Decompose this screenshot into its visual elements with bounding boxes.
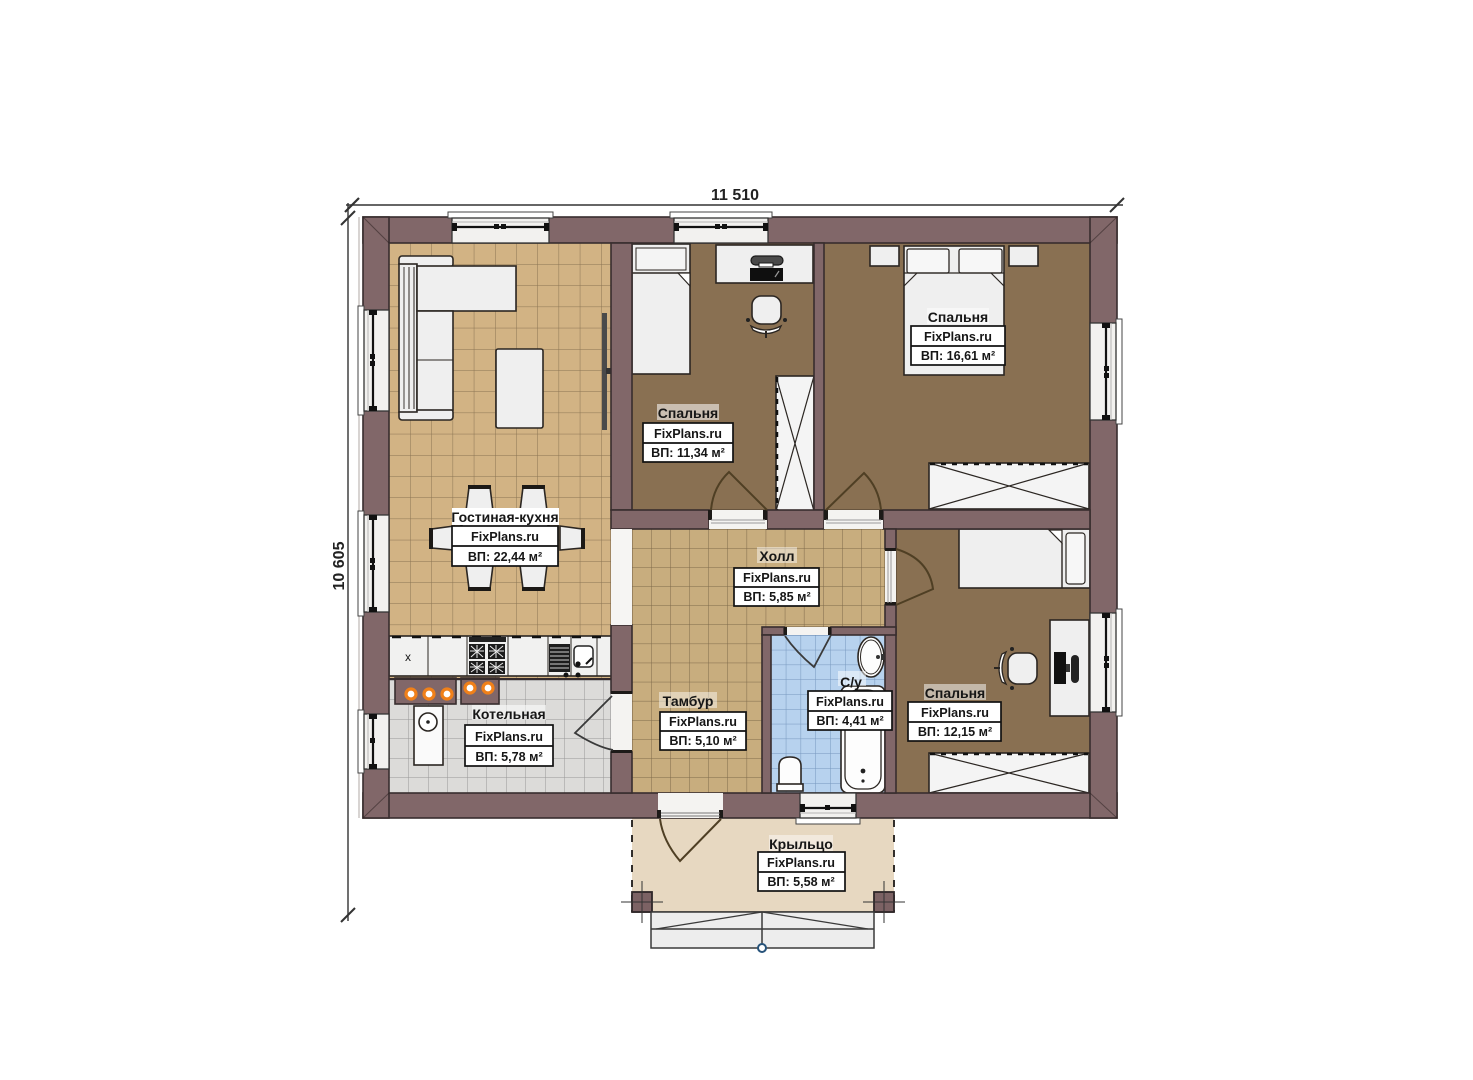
- svg-text:FixPlans.ru: FixPlans.ru: [471, 530, 539, 544]
- svg-text:Крыльцо: Крыльцо: [769, 836, 833, 852]
- svg-text:x: x: [405, 650, 411, 664]
- svg-text:Спальня: Спальня: [658, 405, 718, 421]
- svg-text:Гостиная-кухня: Гостиная-кухня: [451, 509, 558, 525]
- svg-text:ВП: 12,15 м²: ВП: 12,15 м²: [918, 725, 992, 739]
- svg-text:FixPlans.ru: FixPlans.ru: [924, 330, 992, 344]
- svg-text:FixPlans.ru: FixPlans.ru: [743, 571, 811, 585]
- svg-text:ВП: 5,85 м²: ВП: 5,85 м²: [743, 590, 810, 604]
- svg-text:ВП: 5,58 м²: ВП: 5,58 м²: [767, 875, 834, 889]
- svg-text:FixPlans.ru: FixPlans.ru: [816, 695, 884, 709]
- svg-text:FixPlans.ru: FixPlans.ru: [475, 730, 543, 744]
- svg-text:ВП: 5,10 м²: ВП: 5,10 м²: [669, 734, 736, 748]
- svg-text:Тамбур: Тамбур: [663, 693, 714, 709]
- svg-text:ВП: 4,41 м²: ВП: 4,41 м²: [816, 714, 883, 728]
- svg-text:ВП: 11,34 м²: ВП: 11,34 м²: [651, 446, 725, 460]
- svg-text:FixPlans.ru: FixPlans.ru: [654, 427, 722, 441]
- svg-text:Холл: Холл: [759, 548, 794, 564]
- svg-text:Котельная: Котельная: [472, 706, 545, 722]
- svg-text:ВП: 16,61 м²: ВП: 16,61 м²: [921, 349, 995, 363]
- svg-text:Спальня: Спальня: [928, 309, 988, 325]
- svg-text:С/у: С/у: [840, 674, 862, 690]
- svg-text:11 510: 11 510: [711, 187, 759, 204]
- svg-text:Спальня: Спальня: [925, 685, 985, 701]
- svg-text:FixPlans.ru: FixPlans.ru: [669, 715, 737, 729]
- svg-text:FixPlans.ru: FixPlans.ru: [767, 856, 835, 870]
- svg-text:ВП: 5,78 м²: ВП: 5,78 м²: [475, 750, 542, 764]
- svg-text:FixPlans.ru: FixPlans.ru: [921, 706, 989, 720]
- svg-text:ВП: 22,44 м²: ВП: 22,44 м²: [468, 550, 542, 564]
- svg-text:10 605: 10 605: [331, 541, 348, 590]
